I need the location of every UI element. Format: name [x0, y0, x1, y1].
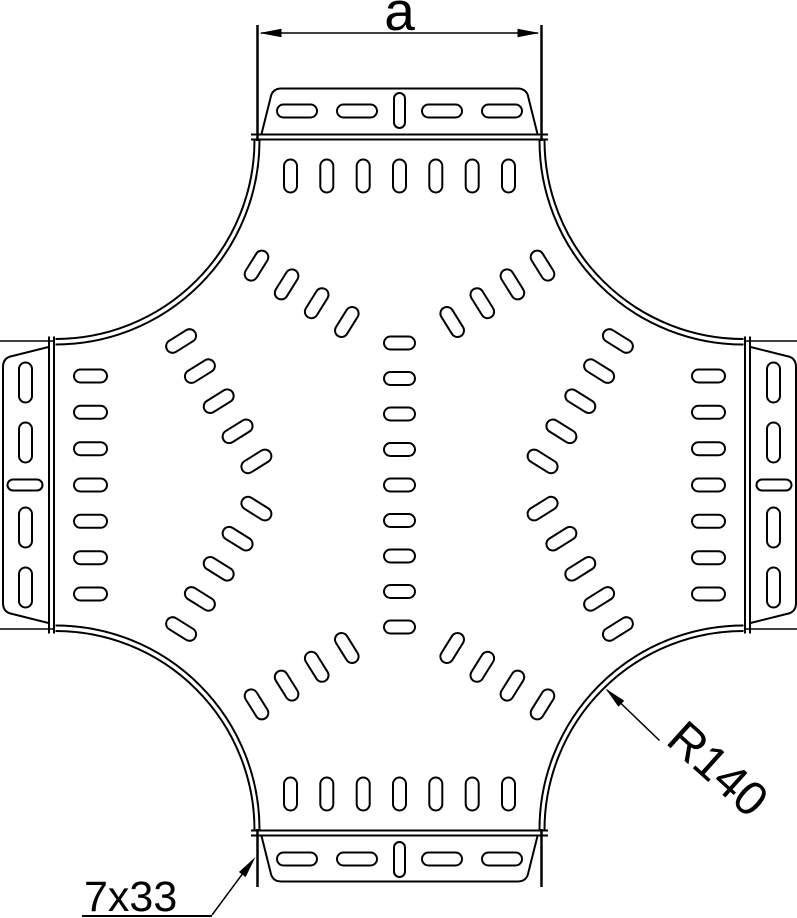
cable-tray-cross-piece-drawing: a R140 7x33 [0, 0, 797, 918]
radius-label: R140 [657, 711, 778, 827]
center-slot [384, 337, 415, 350]
slot-size-arrow-icon [239, 854, 259, 877]
center-slot-column [384, 337, 415, 634]
slot-size-callout: 7x33 [82, 854, 259, 918]
center-slot [384, 443, 415, 456]
dimension-arrow-left-icon [260, 29, 282, 37]
center-slot [384, 408, 415, 421]
center-slot [384, 621, 415, 634]
arm-right [692, 337, 796, 634]
dimension-a-label: a [384, 0, 415, 42]
radius-callout: R140 [603, 685, 778, 827]
slot-size-label: 7x33 [84, 873, 177, 918]
center-slot [384, 372, 415, 385]
corner-bottom-left [56, 494, 362, 830]
dimension-arrow-right-icon [518, 29, 540, 37]
dimension-a: a [260, 0, 540, 42]
drawing-canvas: a R140 7x33 [0, 0, 797, 918]
arm-bottom [251, 778, 548, 882]
arm-left [3, 337, 107, 634]
center-slot [384, 514, 415, 527]
arm-top [251, 89, 548, 193]
center-slot [384, 585, 415, 598]
radius-arrow-icon [603, 685, 625, 706]
center-slot [384, 550, 415, 563]
corner-top-left [56, 140, 362, 476]
center-slot [384, 479, 415, 492]
corner-top-right [438, 140, 744, 476]
